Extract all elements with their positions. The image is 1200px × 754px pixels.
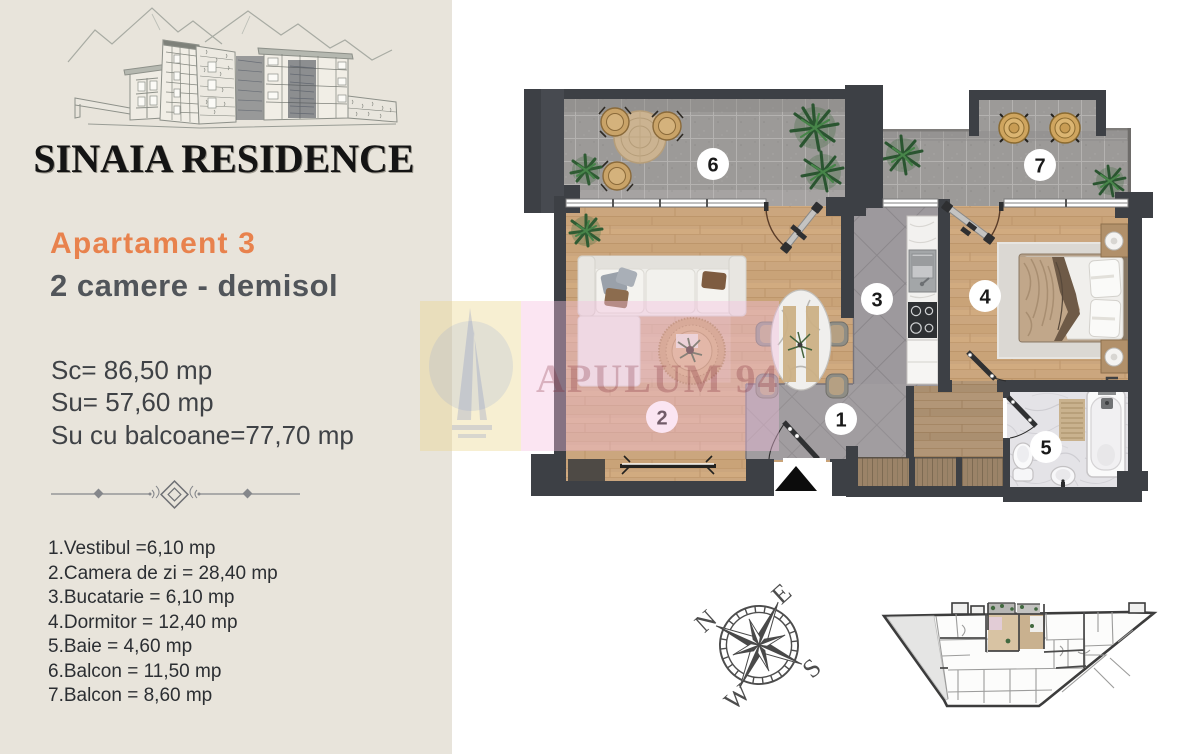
svg-text:7: 7 xyxy=(1034,156,1045,178)
svg-text:4: 4 xyxy=(979,287,991,309)
svg-text:5: 5 xyxy=(1040,438,1051,460)
svg-text:E: E xyxy=(766,578,797,610)
svg-text:S: S xyxy=(797,653,827,684)
svg-text:N: N xyxy=(689,604,723,638)
svg-text:1: 1 xyxy=(835,410,846,432)
svg-text:APULUM 94: APULUM 94 xyxy=(536,356,780,401)
svg-text:3: 3 xyxy=(871,290,882,312)
svg-text:6: 6 xyxy=(707,155,718,177)
